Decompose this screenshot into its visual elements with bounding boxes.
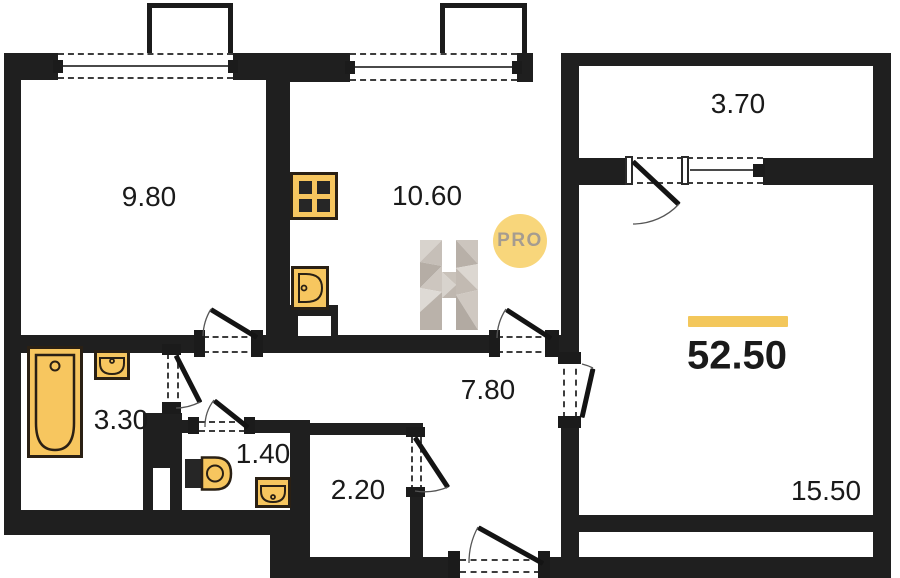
wall-segment bbox=[4, 53, 58, 80]
door-jamb bbox=[162, 344, 181, 355]
door-opening bbox=[497, 336, 551, 353]
door-jamb bbox=[625, 156, 633, 185]
room-area-label-kitchen: 10.60 bbox=[392, 180, 462, 212]
wall-segment bbox=[561, 53, 579, 358]
room-area-label-storage: 2.20 bbox=[331, 474, 386, 506]
wall-segment bbox=[233, 53, 280, 80]
door-leaf bbox=[580, 368, 596, 418]
wall-segment bbox=[280, 53, 350, 82]
wall-segment bbox=[763, 158, 873, 185]
door-opening bbox=[563, 358, 577, 418]
kitchen-sink-icon bbox=[291, 266, 329, 310]
window-glass-line bbox=[58, 65, 233, 67]
door-opening bbox=[203, 336, 257, 353]
window-jamb bbox=[345, 61, 355, 74]
door-jamb bbox=[162, 402, 181, 414]
door-jamb bbox=[448, 551, 460, 578]
pro-badge-label: PRO bbox=[497, 230, 543, 252]
room-area-label-living: 15.50 bbox=[791, 475, 861, 507]
toilet-icon bbox=[185, 456, 233, 491]
wall-segment bbox=[290, 423, 423, 435]
door-jamb bbox=[558, 352, 581, 364]
window-jamb bbox=[53, 60, 63, 73]
room-area-label-wc: 1.40 bbox=[236, 438, 291, 470]
pro-badge: PRO bbox=[493, 214, 547, 268]
door-jamb bbox=[194, 330, 205, 357]
stove-icon bbox=[290, 172, 338, 220]
brand-watermark-icon bbox=[420, 240, 478, 330]
wall-segment bbox=[579, 53, 873, 66]
door-leaf bbox=[210, 307, 259, 339]
total-area-accent-bar bbox=[688, 316, 788, 327]
total-area-label: 52.50 bbox=[687, 334, 787, 379]
window-glass-line bbox=[350, 66, 517, 68]
door-jamb bbox=[681, 156, 689, 185]
duct-notch bbox=[298, 316, 331, 336]
wall-segment bbox=[540, 557, 873, 578]
wall-segment bbox=[4, 53, 21, 535]
wall-segment bbox=[561, 515, 873, 532]
window-jamb bbox=[512, 61, 522, 74]
window-jamb bbox=[753, 164, 765, 177]
wall-segment bbox=[873, 53, 891, 578]
floor-plan: PRO 52.50 9.80 10.60 3.70 3.30 1.40 2.20… bbox=[0, 0, 900, 578]
balcony-outline-left bbox=[147, 3, 233, 54]
door-jamb bbox=[188, 417, 199, 434]
door-jamb bbox=[558, 416, 581, 428]
duct-notch bbox=[153, 468, 170, 510]
wall-segment bbox=[4, 510, 290, 535]
wc-sink-icon bbox=[255, 477, 291, 508]
wall-segment bbox=[561, 158, 627, 185]
entrance-door-opening bbox=[460, 559, 540, 573]
door-jamb bbox=[406, 487, 425, 497]
room-area-label-bathroom: 3.30 bbox=[94, 404, 149, 436]
window-glass-line bbox=[690, 169, 757, 171]
room-area-label-balcony: 3.70 bbox=[711, 88, 766, 120]
wall-segment bbox=[270, 557, 460, 578]
bathroom-sink-icon bbox=[94, 350, 130, 380]
door-jamb bbox=[489, 330, 500, 357]
room-area-label-room: 9.80 bbox=[122, 181, 177, 213]
wall-segment bbox=[410, 491, 423, 557]
wall-segment bbox=[561, 418, 579, 557]
balcony-outline-right bbox=[440, 3, 527, 54]
room-area-label-hallway: 7.80 bbox=[461, 374, 516, 406]
bathtub-icon bbox=[27, 346, 83, 458]
window-jamb bbox=[228, 60, 238, 73]
door-jamb bbox=[406, 427, 425, 437]
